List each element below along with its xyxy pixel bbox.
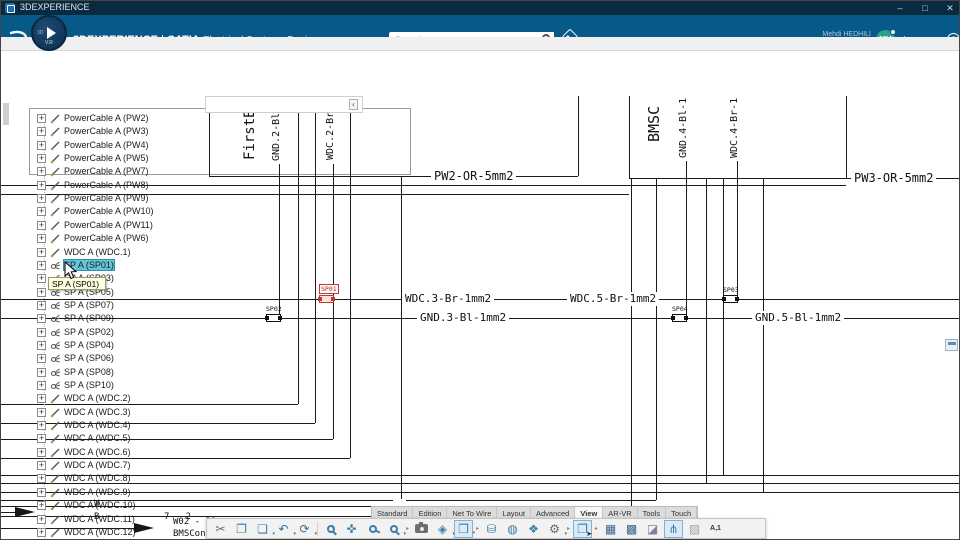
expand-plus-icon[interactable]: + xyxy=(37,207,46,216)
wire-label: GND.5-Bl-1mm2 xyxy=(752,311,844,325)
tree-item-label[interactable]: PowerCable A (PW11) xyxy=(64,220,153,230)
splice-marker-label: SP03 xyxy=(723,286,739,294)
expand-plus-icon[interactable]: + xyxy=(37,528,46,537)
iso-view-icon[interactable]: ❒▾ xyxy=(454,520,473,538)
splice-marker-nub xyxy=(278,316,282,320)
pan-icon[interactable]: ✜ xyxy=(342,520,361,538)
expand-plus-icon[interactable]: + xyxy=(37,114,46,123)
panel-flyout-icon[interactable] xyxy=(945,339,958,351)
window-add-icon[interactable]: ❖ xyxy=(524,520,543,538)
wire-label: PW3-OR-5mm2 xyxy=(851,171,936,185)
zoom-in-icon[interactable]: + xyxy=(321,520,340,538)
tree-item-label[interactable]: WDC A (WDC.9) xyxy=(64,487,131,497)
cable-icon xyxy=(50,153,61,164)
splice-marker-nub xyxy=(331,297,335,301)
expand-plus-icon[interactable]: + xyxy=(37,194,46,203)
expand-plus-icon[interactable]: + xyxy=(37,515,46,524)
tree-item-label[interactable]: PowerCable A (PW9) xyxy=(64,193,149,203)
tree-item-label[interactable]: WDC A (WDC.2) xyxy=(64,393,131,403)
tree-item-label[interactable]: WDC A (WDC.11) xyxy=(64,514,135,524)
wire-line xyxy=(723,178,724,475)
tree-item-label[interactable]: SP A (SP02) xyxy=(64,327,114,337)
wire-label-vertical: WDC.2-Br xyxy=(325,107,336,164)
collapsed-panel-strip: ‹ xyxy=(205,96,363,113)
select-view-icon[interactable]: ❒➤ xyxy=(573,520,592,538)
expand-plus-icon[interactable]: + xyxy=(37,181,46,190)
wire-line xyxy=(763,178,764,492)
grid-icon[interactable]: ▩ xyxy=(622,520,641,538)
offsheet-connector-arrow-icon xyxy=(15,507,35,517)
cable-icon xyxy=(50,393,61,404)
wire-label: WDC.3-Br-1mm2 xyxy=(402,292,494,306)
wire-label-vertical: GND.2-Bl- xyxy=(271,107,282,164)
app-icon xyxy=(5,3,15,13)
zoom-icon[interactable]: ▾ xyxy=(384,520,403,538)
splice-marker-label: SP02 xyxy=(266,305,282,313)
close-button[interactable]: ✕ xyxy=(939,1,960,15)
schematic-viewport[interactable]: PW2-OR-5mm2PW3-OR-5mm2WDC.3-Br-1mm2WDC.5… xyxy=(1,51,960,539)
expand-plus-icon[interactable]: + xyxy=(37,154,46,163)
wire-line xyxy=(578,96,579,176)
cable-icon xyxy=(50,514,61,525)
tree-item-label[interactable]: WDC A (WDC.7) xyxy=(64,460,131,470)
net-view-icon[interactable]: ⋔ xyxy=(664,520,683,538)
wire-line xyxy=(1,512,15,513)
tree-item-label[interactable]: WDC A (WDC.6) xyxy=(64,447,131,457)
3d-compass-icon[interactable]: 3D V.R xyxy=(31,15,67,51)
cable-icon xyxy=(50,420,61,431)
tree-item-label[interactable]: SP A (SP08) xyxy=(64,367,114,377)
expand-plus-icon[interactable]: + xyxy=(37,448,46,457)
cable-icon xyxy=(50,433,61,444)
wire-line xyxy=(401,176,402,540)
globe-add-icon[interactable]: ◍ xyxy=(503,520,522,538)
view-manager-icon[interactable]: ◈▾ xyxy=(433,520,452,538)
wire-line xyxy=(629,96,630,178)
tree-item-label[interactable]: PowerCable A (PW10) xyxy=(64,206,154,216)
tree-item-label[interactable]: PowerCable A (PW2) xyxy=(64,113,149,123)
splice-marker-label: SP01 xyxy=(319,284,339,294)
magnifier-icon xyxy=(390,525,398,533)
copy-icon[interactable]: ❐ xyxy=(232,520,251,538)
update-icon[interactable]: ⟳▾ xyxy=(295,520,314,538)
cable-icon xyxy=(50,460,61,471)
expand-plus-icon[interactable]: + xyxy=(37,274,46,283)
expand-plus-icon[interactable]: + xyxy=(37,421,46,430)
wire-line xyxy=(1,423,315,424)
tree-item-label[interactable]: WDC A (WDC.12) xyxy=(64,527,136,537)
expand-plus-icon[interactable]: + xyxy=(37,408,46,417)
app-header: 3DEXPERIENCE | CATIA Electrical Systems … xyxy=(1,15,960,37)
splice-icon xyxy=(50,367,61,378)
maximize-button[interactable]: □ xyxy=(914,1,936,15)
wire-label: GND.3-Bl-1mm2 xyxy=(417,311,509,325)
wire-line xyxy=(298,96,299,404)
sketch-eraser-icon[interactable]: ◪ xyxy=(643,520,662,538)
cable-icon xyxy=(50,527,61,538)
wire-label: WDC.5-Br-1mm2 xyxy=(567,292,659,306)
wire-line xyxy=(350,96,351,458)
wire-label-vertical: FirstBM xyxy=(242,107,258,163)
expand-plus-icon[interactable]: + xyxy=(37,234,46,243)
expand-plus-icon[interactable]: + xyxy=(37,221,46,230)
tree-item-label[interactable]: WDC A (WDC.1) xyxy=(64,247,131,257)
tree-item-label[interactable]: SP A (SP10) xyxy=(64,380,114,390)
cable-icon xyxy=(50,247,61,258)
expand-plus-icon[interactable]: + xyxy=(37,301,46,310)
splice-marker-nub xyxy=(684,316,688,320)
document-tab-bar: RFLP - BatteryElectricalDe... + ⤢ xyxy=(1,37,960,51)
splice-icon xyxy=(50,380,61,391)
expand-plus-icon[interactable]: + xyxy=(37,328,46,337)
wire-label-vertical: BMSC xyxy=(645,96,663,151)
minimize-button[interactable]: – xyxy=(889,1,911,15)
tree-item-label[interactable]: SP A (SP09) xyxy=(64,313,114,323)
cable-icon xyxy=(50,473,61,484)
wire-label-vertical: GND.4-Bl-1 xyxy=(678,95,689,161)
cable-icon xyxy=(50,487,61,498)
expand-plus-icon[interactable]: + xyxy=(37,261,46,270)
expand-plus-icon[interactable]: + xyxy=(37,474,46,483)
wire-line xyxy=(209,176,578,177)
offsheet-connector-arrow-icon xyxy=(134,523,154,533)
magnifier-icon xyxy=(367,523,377,533)
flyout-arrow-icon[interactable]: ▸ xyxy=(593,525,600,532)
cable-icon xyxy=(50,166,61,177)
wire-line xyxy=(631,178,632,516)
splice-icon xyxy=(50,313,61,324)
wire-line xyxy=(1,475,960,476)
tree-item-label[interactable]: SP A (SP07) xyxy=(64,300,114,310)
camera-icon[interactable] xyxy=(412,520,431,538)
wire-label: PW2-OR-5mm2 xyxy=(431,169,516,183)
expand-plus-icon[interactable]: + xyxy=(37,314,46,323)
splice-marker-label: SP04 xyxy=(672,305,688,313)
splice-marker-nub xyxy=(265,316,269,320)
cable-icon xyxy=(50,140,61,151)
expand-plus-icon[interactable]: + xyxy=(37,288,46,297)
hide-show-icon[interactable]: ▨ xyxy=(685,520,704,538)
window-title: 3DEXPERIENCE xyxy=(20,2,90,12)
notification-dot xyxy=(890,29,896,35)
cable-icon xyxy=(50,180,61,191)
wire-line xyxy=(315,96,316,423)
bottom-toolbar: ✂❐❏▾↶▾⟳▾+✜▾▸◈▾❒▾▸⛁◍❖⚙▾▸❒➤▸▦▩◪⋔▨A,1 xyxy=(206,518,766,539)
cable-icon xyxy=(50,447,61,458)
wire-line xyxy=(1,506,401,507)
tree-item-label[interactable]: PowerCable A (PW8) xyxy=(64,180,149,190)
splice-marker-nub xyxy=(671,316,675,320)
tree-item-label[interactable]: WDC A (WDC.10) xyxy=(64,500,136,510)
scrollbar-fragment[interactable] xyxy=(3,103,9,125)
wire-line xyxy=(656,178,657,500)
cable-icon xyxy=(50,126,61,137)
tree-item-label[interactable]: WDC A (WDC.3) xyxy=(64,407,131,417)
collapse-chevron-icon[interactable]: ‹ xyxy=(349,99,358,110)
wire-line xyxy=(1,492,960,493)
cut-icon[interactable]: ✂ xyxy=(211,520,230,538)
expand-plus-icon[interactable]: + xyxy=(37,368,46,377)
tree-item-label[interactable]: PowerCable A (PW5) xyxy=(64,153,149,163)
wire-line xyxy=(1,404,298,405)
expand-plus-icon[interactable]: + xyxy=(37,381,46,390)
wire-label-vertical: WDC.4-Br-1 xyxy=(729,95,740,161)
cable-icon xyxy=(50,500,61,511)
splice-marker-nub xyxy=(735,297,739,301)
cable-icon xyxy=(50,233,61,244)
expand-plus-icon[interactable]: + xyxy=(37,488,46,497)
wire-line xyxy=(706,178,707,483)
tree-item-label[interactable]: WDC A (WDC.8) xyxy=(64,473,131,483)
grid-snap-icon[interactable]: ▦ xyxy=(601,520,620,538)
settings-icon[interactable]: ⚙▾ xyxy=(545,520,564,538)
tree-item-label[interactable]: PowerCable A (PW4) xyxy=(64,140,149,150)
tree-item-label[interactable]: WDC A (WDC.4) xyxy=(64,420,131,430)
expand-plus-icon[interactable]: + xyxy=(37,461,46,470)
splice-icon xyxy=(50,327,61,338)
camera-icon xyxy=(415,524,428,533)
expand-plus-icon[interactable]: + xyxy=(37,434,46,443)
cable-icon xyxy=(50,113,61,124)
toolbar-separator xyxy=(317,522,318,536)
expand-plus-icon[interactable]: + xyxy=(37,127,46,136)
tree-item-label[interactable]: SP A (SP04) xyxy=(64,340,114,350)
tree-item-label[interactable]: PowerCable A (PW6) xyxy=(64,233,149,243)
splice-icon xyxy=(50,340,61,351)
undo-icon[interactable]: ↶▾ xyxy=(274,520,293,538)
cable-icon xyxy=(50,220,61,231)
splice-icon xyxy=(50,260,61,271)
splice-icon xyxy=(50,353,61,364)
tree-item-label[interactable]: PowerCable A (PW3) xyxy=(64,126,149,136)
cable-icon xyxy=(50,407,61,418)
application-window: 3DEXPERIENCE – □ ✕ 3DEXPERIENCE | CATIA … xyxy=(0,0,960,540)
database-add-icon[interactable]: ⛁ xyxy=(482,520,501,538)
paste-icon[interactable]: ❏▾ xyxy=(253,520,272,538)
tree-item-label[interactable]: SP A (SP06) xyxy=(64,353,114,363)
mouse-cursor-icon xyxy=(64,261,78,280)
flyout-arrow-icon[interactable]: ▸ xyxy=(474,525,481,532)
wire-line xyxy=(846,96,847,178)
expand-plus-icon[interactable]: + xyxy=(37,394,46,403)
magnifier-icon: + xyxy=(327,525,335,533)
cable-icon xyxy=(50,193,61,204)
window-title-bar: 3DEXPERIENCE – □ ✕ xyxy=(1,1,960,15)
expand-plus-icon[interactable]: + xyxy=(37,141,46,150)
fly-icon[interactable] xyxy=(363,520,382,538)
annotation-icon[interactable]: A,1 xyxy=(706,520,725,538)
expand-plus-icon[interactable]: + xyxy=(37,167,46,176)
wire-line xyxy=(1,483,960,484)
play-icon xyxy=(47,27,56,39)
expand-plus-icon[interactable]: + xyxy=(37,354,46,363)
tree-item-label[interactable]: PowerCable A (PW7) xyxy=(64,166,149,176)
cable-icon xyxy=(50,206,61,217)
wire-line xyxy=(1,458,350,459)
splice-marker-nub xyxy=(318,297,322,301)
expand-plus-icon[interactable]: + xyxy=(37,248,46,257)
expand-plus-icon[interactable]: + xyxy=(37,501,46,510)
expand-plus-icon[interactable]: + xyxy=(37,341,46,350)
tree-item-label[interactable]: WDC A (WDC.5) xyxy=(64,433,131,443)
splice-marker-nub xyxy=(722,297,726,301)
splice-icon xyxy=(50,300,61,311)
diagram-text: 7 2 xyxy=(164,512,191,522)
